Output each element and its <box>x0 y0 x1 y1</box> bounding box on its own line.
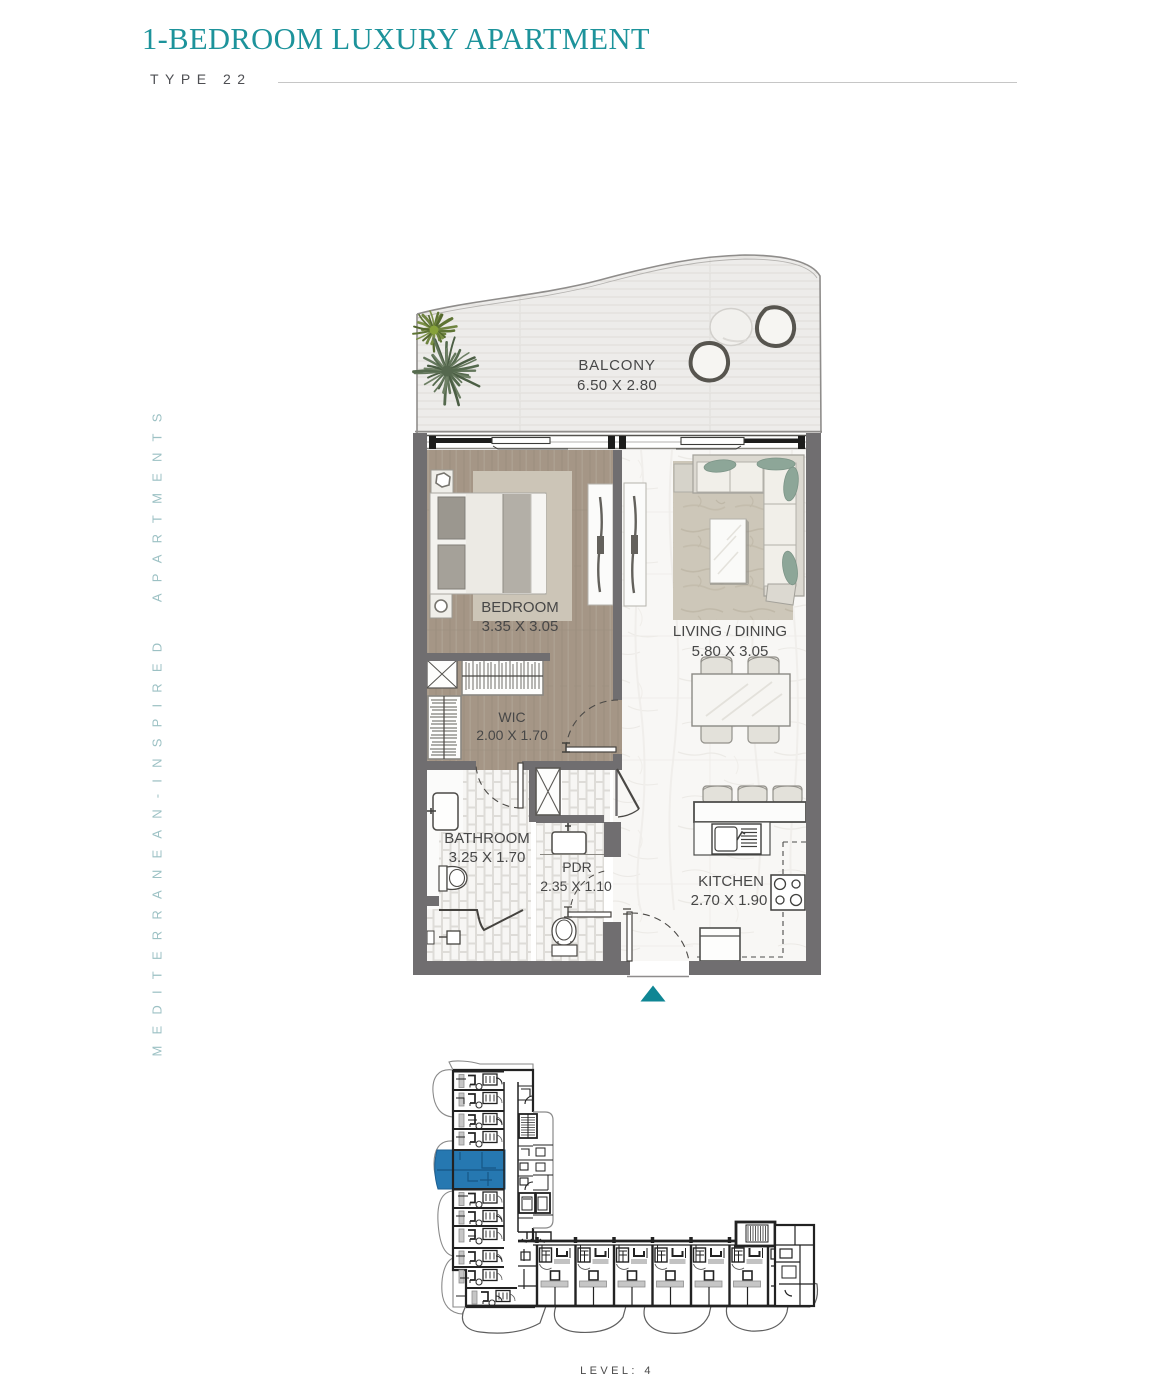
svg-text:BATHROOM: BATHROOM <box>444 830 530 847</box>
svg-text:PDR: PDR <box>562 859 592 875</box>
svg-text:2.70 X 1.90: 2.70 X 1.90 <box>691 892 768 909</box>
svg-text:2.00 X 1.70: 2.00 X 1.70 <box>476 727 548 743</box>
svg-text:BEDROOM: BEDROOM <box>481 599 559 616</box>
svg-text:KITCHEN: KITCHEN <box>698 873 764 890</box>
svg-text:3.35 X 3.05: 3.35 X 3.05 <box>482 618 559 635</box>
svg-text:2.35 X 1.10: 2.35 X 1.10 <box>540 878 612 894</box>
svg-text:BALCONY: BALCONY <box>578 357 655 374</box>
svg-text:6.50 X 2.80: 6.50 X 2.80 <box>577 377 657 394</box>
svg-text:WIC: WIC <box>498 709 525 725</box>
svg-text:LIVING / DINING: LIVING / DINING <box>673 623 787 640</box>
svg-text:3.25 X 1.70: 3.25 X 1.70 <box>449 849 526 866</box>
svg-text:5.80 X 3.05: 5.80 X 3.05 <box>692 643 769 660</box>
